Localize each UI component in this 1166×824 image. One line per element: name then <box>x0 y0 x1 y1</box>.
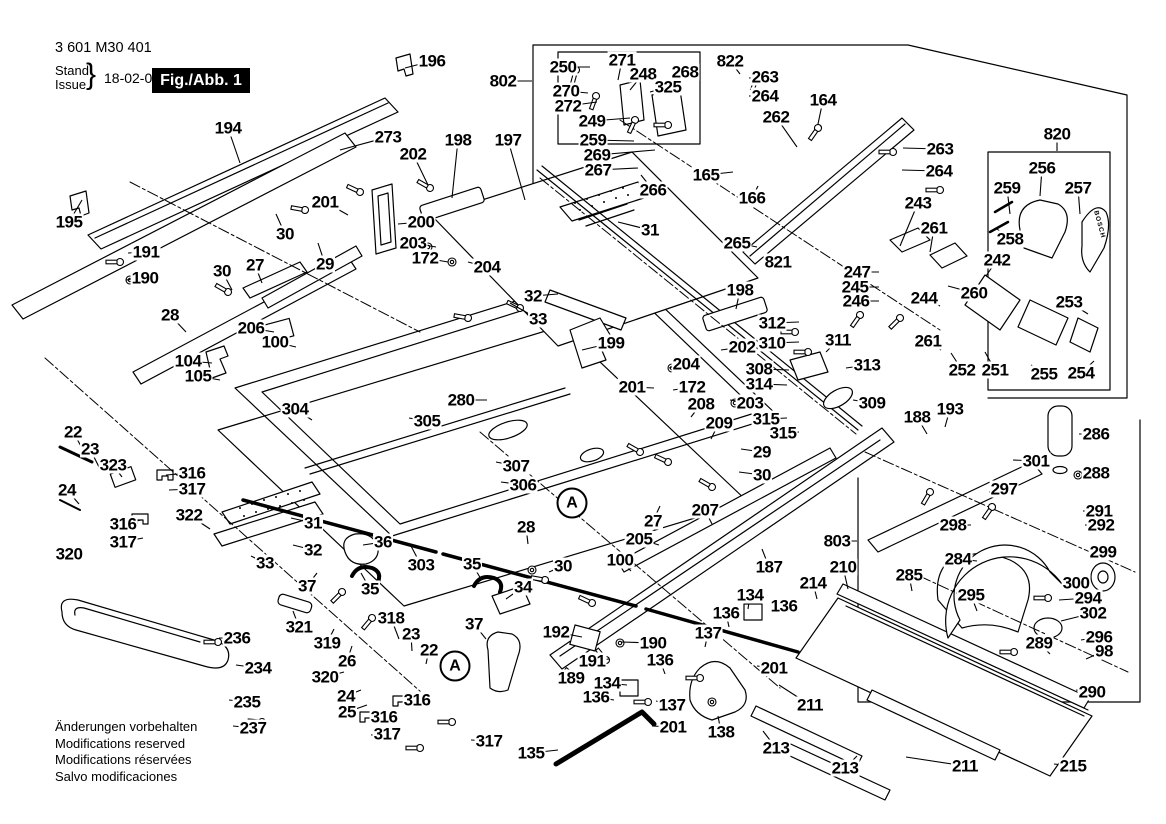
part-callout-246: 246 <box>842 293 871 310</box>
part-callout-298: 298 <box>939 517 968 534</box>
part-callout-136: 136 <box>646 652 675 669</box>
part-callout-261: 261 <box>920 220 949 237</box>
part-callout-22: 22 <box>419 642 439 659</box>
part-callout-215: 215 <box>1059 758 1088 775</box>
part-callout-317: 317 <box>109 534 138 551</box>
part-callout-136: 136 <box>712 605 741 622</box>
part-callout-295: 295 <box>957 587 986 604</box>
part-callout-100: 100 <box>606 552 635 569</box>
part-callout-316: 316 <box>403 692 432 709</box>
part-callout-27: 27 <box>245 257 265 274</box>
part-callout-29: 29 <box>752 444 772 461</box>
part-callout-242: 242 <box>983 252 1012 269</box>
revision-note-line: Änderungen vorbehalten <box>55 719 197 736</box>
part-callout-23: 23 <box>80 441 100 458</box>
part-callout-310: 310 <box>758 335 787 352</box>
part-callout-325: 325 <box>654 79 683 96</box>
part-callout-33: 33 <box>528 311 548 328</box>
part-callout-190: 190 <box>131 270 160 287</box>
part-callout-197: 197 <box>494 132 523 149</box>
part-callout-205: 205 <box>625 531 654 548</box>
part-callout-172: 172 <box>411 250 440 267</box>
part-callout-193: 193 <box>936 401 965 418</box>
part-callout-30: 30 <box>275 226 295 243</box>
part-callout-198: 198 <box>726 282 755 299</box>
part-callout-256: 256 <box>1028 160 1057 177</box>
part-callout-280: 280 <box>447 392 476 409</box>
part-callout-207: 207 <box>691 502 720 519</box>
part-callout-820: 820 <box>1043 126 1072 143</box>
part-callout-254: 254 <box>1067 365 1096 382</box>
part-callout-316: 316 <box>109 516 138 533</box>
part-callout-202: 202 <box>399 146 428 163</box>
part-callout-253: 253 <box>1055 294 1084 311</box>
part-callout-137: 137 <box>658 697 687 714</box>
part-callout-37: 37 <box>464 616 484 633</box>
part-callout-302: 302 <box>1079 605 1108 622</box>
part-callout-236: 236 <box>223 630 252 647</box>
detail-marker-A: A <box>440 651 471 682</box>
part-callout-34: 34 <box>513 579 533 596</box>
part-callout-30: 30 <box>553 558 573 575</box>
part-callout-138: 138 <box>707 724 736 741</box>
part-callout-134: 134 <box>736 587 765 604</box>
part-callout-98: 98 <box>1094 643 1114 660</box>
part-callout-313: 313 <box>853 357 882 374</box>
part-callout-134: 134 <box>593 675 622 692</box>
part-callout-33: 33 <box>255 555 275 572</box>
detail-marker-A: A <box>557 488 588 519</box>
part-callout-100: 100 <box>261 334 290 351</box>
part-callout-189: 189 <box>557 670 586 687</box>
part-callout-26: 26 <box>337 653 357 670</box>
part-callout-251: 251 <box>981 362 1010 379</box>
part-callout-196: 196 <box>418 53 447 70</box>
stand-label: Stand <box>55 64 89 78</box>
part-callout-312: 312 <box>758 315 787 332</box>
part-callout-201: 201 <box>659 719 688 736</box>
part-callout-32: 32 <box>303 542 323 559</box>
part-callout-209: 209 <box>705 415 734 432</box>
part-callout-37: 37 <box>297 578 317 595</box>
part-callout-286: 286 <box>1082 426 1111 443</box>
part-callout-299: 299 <box>1089 544 1118 561</box>
part-callout-32: 32 <box>523 288 543 305</box>
part-callout-166: 166 <box>738 190 767 207</box>
part-callout-322: 322 <box>175 507 204 524</box>
part-callout-27: 27 <box>643 513 663 530</box>
part-callout-28: 28 <box>516 519 536 536</box>
part-callout-29: 29 <box>315 256 335 273</box>
part-callout-260: 260 <box>960 285 989 302</box>
revision-note-line: Salvo modificaciones <box>55 769 197 786</box>
part-callout-214: 214 <box>799 575 828 592</box>
part-callout-213: 213 <box>831 760 860 777</box>
part-callout-259: 259 <box>993 180 1022 197</box>
part-callout-31: 31 <box>640 222 660 239</box>
part-callout-265: 265 <box>723 235 752 252</box>
part-callout-243: 243 <box>904 195 933 212</box>
part-callout-284: 284 <box>944 551 973 568</box>
part-callout-210: 210 <box>829 559 858 576</box>
part-callout-285: 285 <box>895 567 924 584</box>
part-callout-317: 317 <box>178 481 207 498</box>
part-callout-23: 23 <box>401 626 421 643</box>
part-callout-199: 199 <box>597 335 626 352</box>
part-callout-188: 188 <box>903 409 932 426</box>
stand-issue-block: Stand Issue <box>55 64 89 92</box>
part-callout-306: 306 <box>509 477 538 494</box>
part-callout-304: 304 <box>281 401 310 418</box>
part-callout-204: 204 <box>672 356 701 373</box>
part-callout-314: 314 <box>745 376 774 393</box>
part-callout-28: 28 <box>160 307 180 324</box>
part-callout-191: 191 <box>578 653 607 670</box>
part-callout-273: 273 <box>374 129 403 146</box>
figure-badge: Fig./Abb. 1 <box>152 68 250 93</box>
part-callout-204: 204 <box>473 259 502 276</box>
part-callout-305: 305 <box>413 413 442 430</box>
part-callout-30: 30 <box>212 263 232 280</box>
part-callout-201: 201 <box>760 660 789 677</box>
part-callout-30: 30 <box>752 467 772 484</box>
part-callout-235: 235 <box>233 694 262 711</box>
part-callout-311: 311 <box>824 332 852 349</box>
part-callout-208: 208 <box>687 396 716 413</box>
revision-note-line: Modifications réservées <box>55 752 197 769</box>
part-callout-290: 290 <box>1078 684 1107 701</box>
issue-label: Issue <box>55 78 89 92</box>
part-callout-303: 303 <box>407 557 436 574</box>
part-callout-307: 307 <box>502 458 531 475</box>
part-callout-200: 200 <box>407 214 436 231</box>
part-callout-135: 135 <box>517 745 546 762</box>
part-callout-317: 317 <box>475 733 504 750</box>
part-callout-267: 267 <box>584 162 613 179</box>
part-callout-25: 25 <box>337 704 357 721</box>
part-callout-252: 252 <box>948 362 977 379</box>
part-callout-258: 258 <box>996 231 1025 248</box>
part-callout-244: 244 <box>910 290 939 307</box>
part-callout-187: 187 <box>755 559 784 576</box>
part-callout-201: 201 <box>618 379 647 396</box>
part-callout-289: 289 <box>1025 635 1054 652</box>
part-callout-195: 195 <box>55 214 84 231</box>
part-callout-316: 316 <box>370 709 399 726</box>
part-callout-192: 192 <box>542 624 571 641</box>
part-callout-22: 22 <box>63 424 83 441</box>
part-callout-172: 172 <box>678 379 707 396</box>
part-callout-190: 190 <box>639 635 668 652</box>
part-callout-802: 802 <box>489 73 518 90</box>
part-callout-292: 292 <box>1087 517 1116 534</box>
part-callout-237: 237 <box>239 720 268 737</box>
part-callout-137: 137 <box>694 625 723 642</box>
part-callout-288: 288 <box>1082 465 1111 482</box>
part-callout-301: 301 <box>1022 453 1051 470</box>
part-callout-191: 191 <box>132 244 161 261</box>
part-callout-320: 320 <box>55 546 84 563</box>
part-callout-263: 263 <box>751 69 780 86</box>
revision-note-line: Modifications reserved <box>55 736 197 753</box>
part-callout-309: 309 <box>858 395 887 412</box>
part-callout-320: 320 <box>311 669 340 686</box>
part-callout-249: 249 <box>578 113 607 130</box>
part-callout-317: 317 <box>373 726 402 743</box>
revision-notes: Änderungen vorbehalten Modifications res… <box>55 719 197 785</box>
part-callout-263: 263 <box>926 141 955 158</box>
part-callout-201: 201 <box>311 194 340 211</box>
part-callout-315: 315 <box>769 425 798 442</box>
part-callout-803: 803 <box>823 533 852 550</box>
part-number: 3 601 M30 401 <box>55 40 152 56</box>
part-callout-198: 198 <box>444 132 473 149</box>
part-callout-234: 234 <box>244 660 273 677</box>
part-callout-821: 821 <box>764 254 793 271</box>
part-callout-35: 35 <box>462 556 482 573</box>
part-callout-213: 213 <box>762 740 791 757</box>
part-callout-194: 194 <box>214 120 243 137</box>
part-callout-319: 319 <box>313 635 342 652</box>
callout-layer: 1941951911901962732021981972013029273028… <box>0 0 1166 824</box>
part-callout-24: 24 <box>57 482 77 499</box>
part-callout-211: 211 <box>796 697 824 714</box>
part-callout-211: 211 <box>951 758 979 775</box>
part-callout-266: 266 <box>639 182 668 199</box>
part-callout-250: 250 <box>549 59 578 76</box>
part-callout-264: 264 <box>751 88 780 105</box>
part-callout-262: 262 <box>762 109 791 126</box>
part-callout-261: 261 <box>914 333 943 350</box>
part-callout-822: 822 <box>716 53 745 70</box>
part-callout-105: 105 <box>184 368 213 385</box>
part-callout-297: 297 <box>990 481 1019 498</box>
part-callout-165: 165 <box>692 167 721 184</box>
part-callout-35: 35 <box>360 581 380 598</box>
part-callout-36: 36 <box>373 534 393 551</box>
part-callout-202: 202 <box>728 339 757 356</box>
part-callout-257: 257 <box>1064 180 1093 197</box>
part-callout-255: 255 <box>1030 366 1059 383</box>
part-callout-264: 264 <box>925 163 954 180</box>
part-callout-136: 136 <box>770 598 799 615</box>
brace-glyph: } <box>86 58 96 92</box>
part-callout-321: 321 <box>285 619 314 636</box>
part-callout-31: 31 <box>303 515 323 532</box>
part-callout-164: 164 <box>809 92 838 109</box>
part-callout-323: 323 <box>99 457 128 474</box>
